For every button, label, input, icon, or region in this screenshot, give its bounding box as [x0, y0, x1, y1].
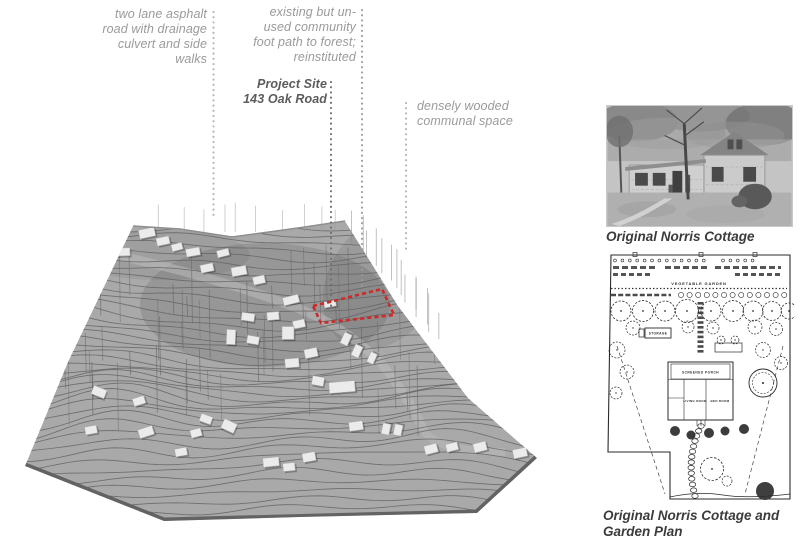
annotation-road: two lane asphalt road with drainage culv…: [57, 7, 207, 67]
photo-caption: Original Norris Cottage: [606, 229, 755, 245]
annotation-line: Project Site: [177, 77, 327, 92]
cottage-window: [743, 167, 756, 182]
model-building: [241, 312, 257, 324]
norris-cottage-photo: [606, 105, 793, 227]
plan-caption: Original Norris Cottage and Garden Plan: [603, 508, 800, 540]
cottage-window: [653, 173, 666, 186]
site-analysis-figure: two lane asphalt road with drainage culv…: [0, 0, 800, 528]
annotation-line: existing but un-: [196, 5, 356, 20]
terrain-model: [14, 187, 545, 521]
annotation-line: used community: [196, 20, 356, 35]
model-building: [283, 462, 297, 473]
model-building: [329, 380, 358, 395]
annotation-line: two lane asphalt: [57, 7, 207, 22]
model-building: [282, 327, 296, 342]
annotation-line: culvert and side: [57, 37, 207, 52]
model-building: [348, 420, 365, 433]
cottage-window: [712, 167, 724, 182]
annotation-line: reinstituted: [196, 50, 356, 65]
annotation-line: foot path to forest;: [196, 35, 356, 50]
annotation-project-site: Project Site 143 Oak Road: [177, 77, 327, 107]
annotation-line: walks: [57, 52, 207, 67]
plan-label-screened-porch: SCREENED PORCH: [682, 371, 719, 375]
model-building: [263, 457, 282, 470]
plan-terrace: [715, 343, 742, 352]
annotation-line: road with drainage: [57, 22, 207, 37]
model-building: [311, 376, 326, 389]
plan-label-living-room: LIVING ROOM: [683, 399, 707, 403]
model-building: [285, 358, 301, 370]
plan-label-vegetable-garden: VEGETABLE GARDEN: [671, 281, 726, 286]
cottage-window: [635, 173, 648, 186]
plan-property-line: [617, 346, 665, 494]
plan-label-storage: STORAGE: [649, 332, 668, 336]
model-building: [226, 329, 237, 346]
plan-large-tree: [749, 369, 777, 397]
annotation-line: 143 Oak Road: [177, 92, 327, 107]
model-building: [112, 248, 132, 258]
annotation-line: communal space: [417, 114, 547, 129]
model-building: [267, 311, 281, 322]
annotation-line: densely wooded: [417, 99, 547, 114]
annotation-woods: densely wooded communal space: [417, 99, 547, 129]
plan-label-bed-room: BED ROOM: [711, 399, 730, 403]
annotation-footpath: existing but un- used community foot pat…: [196, 5, 356, 65]
garden-plan-drawing: VEGETABLE GARDEN STORAGE SCREENED PORCH …: [603, 250, 795, 506]
